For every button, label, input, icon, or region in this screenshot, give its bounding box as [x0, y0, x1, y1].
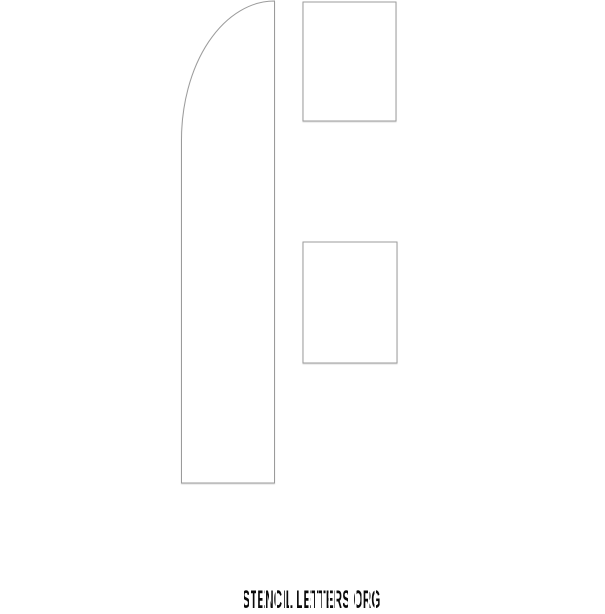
stencil-letter-graphic	[0, 0, 605, 605]
stencil-template-page: { "page": { "background_color": "#ffffff…	[0, 0, 605, 605]
footer: STENCIL LETTERS ORG	[0, 588, 605, 605]
letter-top-arm-shape	[303, 2, 396, 121]
letter-stem-shape	[182, 1, 275, 483]
footer-brand-text: STENCIL LETTERS ORG	[242, 588, 380, 613]
letter-middle-arm-shape	[303, 242, 397, 363]
